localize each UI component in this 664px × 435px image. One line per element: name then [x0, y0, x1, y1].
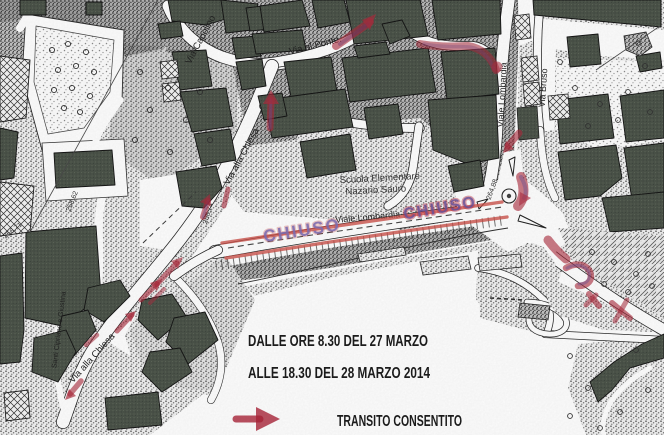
svg-text:DALLE ORE 8.30 DEL 27 MARZO: DALLE ORE 8.30 DEL 27 MARZO	[248, 333, 428, 350]
svg-text:ALLE 18.30 DEL 28 MARZO 2014: ALLE 18.30 DEL 28 MARZO 2014	[248, 365, 430, 382]
svg-text:TRANSITO CONSENTITO: TRANSITO CONSENTITO	[337, 413, 462, 430]
